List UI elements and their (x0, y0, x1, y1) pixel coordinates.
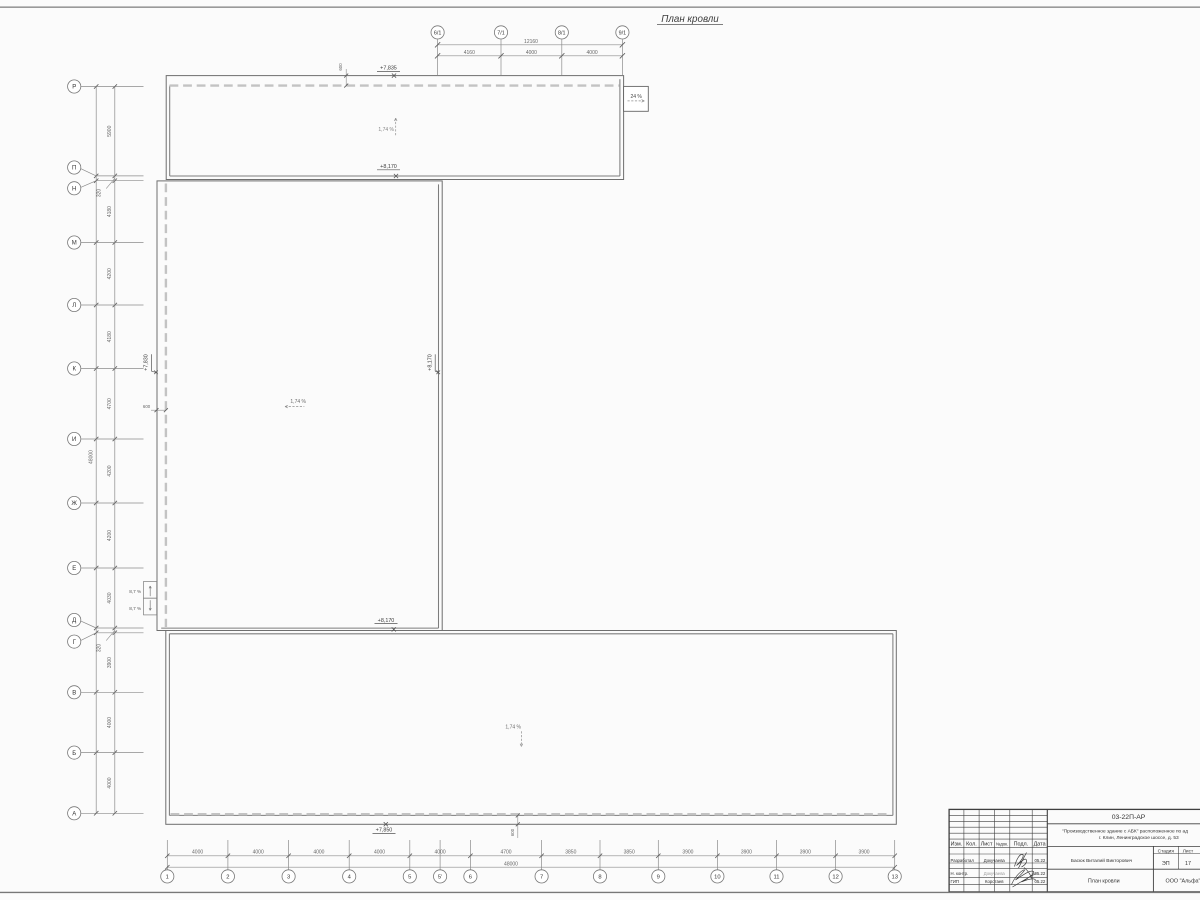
svg-text:3850: 3850 (624, 850, 635, 856)
svg-text:№док.: №док. (996, 841, 1008, 846)
svg-text:1,74 %: 1,74 % (290, 399, 306, 405)
svg-text:Е: Е (72, 566, 76, 572)
svg-text:600: 600 (338, 63, 343, 71)
svg-text:2: 2 (226, 874, 229, 880)
svg-text:600: 600 (510, 828, 515, 836)
svg-text:Дата: Дата (1034, 842, 1046, 848)
svg-text:Ж: Ж (71, 501, 77, 507)
svg-text:3900: 3900 (107, 657, 113, 668)
svg-text:48000: 48000 (504, 861, 518, 867)
svg-text:Д: Д (72, 618, 76, 624)
svg-text:4000: 4000 (107, 777, 113, 788)
svg-text:320: 320 (97, 644, 103, 653)
svg-text:4200: 4200 (107, 268, 113, 279)
svg-text:ООО "Альфа": ООО "Альфа" (1166, 879, 1200, 885)
svg-text:05.22: 05.22 (1035, 879, 1046, 884)
svg-text:П: П (72, 166, 76, 172)
svg-text:+7,850: +7,850 (376, 828, 393, 834)
svg-text:Басюк Виталий Викторович: Басюк Виталий Викторович (1071, 857, 1133, 864)
svg-text:Р: Р (72, 85, 76, 91)
svg-text:03-22П-АР: 03-22П-АР (1112, 814, 1146, 821)
svg-text:Докучаева: Докучаева (984, 871, 1006, 876)
svg-text:3850: 3850 (565, 850, 576, 856)
svg-text:10: 10 (714, 874, 720, 880)
svg-text:12: 12 (832, 874, 838, 880)
svg-text:ГИП: ГИП (951, 879, 960, 884)
svg-text:4000: 4000 (374, 850, 385, 856)
svg-text:1,74 %: 1,74 % (378, 127, 394, 133)
svg-text:5': 5' (438, 874, 442, 880)
svg-text:+7,835: +7,835 (380, 66, 397, 72)
svg-text:Н. контр.: Н. контр. (951, 871, 969, 876)
svg-text:План кровли: План кровли (1088, 879, 1120, 885)
svg-text:7/1: 7/1 (497, 30, 505, 36)
svg-text:4000: 4000 (587, 50, 598, 56)
svg-text:3900: 3900 (682, 850, 693, 856)
svg-text:Н: Н (72, 186, 76, 192)
svg-text:М: М (72, 241, 77, 247)
svg-text:12160: 12160 (524, 39, 538, 45)
svg-text:Б: Б (72, 751, 76, 757)
svg-text:4200: 4200 (107, 530, 113, 541)
svg-text:4000: 4000 (435, 850, 446, 856)
svg-text:Л: Л (72, 303, 76, 309)
svg-text:Изм.: Изм. (951, 842, 963, 848)
svg-text:+8,170: +8,170 (380, 164, 397, 170)
svg-text:11: 11 (773, 874, 779, 880)
svg-text:4030: 4030 (107, 592, 113, 603)
svg-text:4000: 4000 (526, 50, 537, 56)
svg-text:Разработал: Разработал (951, 858, 975, 863)
svg-text:6: 6 (469, 874, 472, 880)
svg-text:1: 1 (166, 874, 169, 880)
svg-text:7: 7 (540, 874, 543, 880)
svg-text:Лист: Лист (1183, 848, 1194, 854)
svg-text:А: А (72, 811, 76, 817)
svg-text:3900: 3900 (800, 850, 811, 856)
svg-text:24 %: 24 % (630, 94, 642, 100)
svg-text:3900: 3900 (858, 850, 869, 856)
svg-text:И: И (72, 437, 76, 443)
svg-text:600: 600 (143, 404, 151, 409)
svg-text:Докучаева: Докучаева (984, 858, 1006, 863)
svg-text:17: 17 (1185, 861, 1191, 867)
svg-text:+7,830: +7,830 (144, 354, 150, 371)
svg-text:4000: 4000 (107, 717, 113, 728)
svg-text:К: К (72, 367, 76, 373)
svg-text:"Производственное здание с АБК: "Производственное здание с АБК" располож… (1062, 828, 1188, 834)
svg-text:План кровли: План кровли (661, 14, 719, 25)
svg-text:4180: 4180 (107, 331, 113, 342)
svg-text:+8,170: +8,170 (378, 618, 395, 624)
svg-text:3: 3 (287, 874, 290, 880)
svg-text:ЭП: ЭП (1162, 861, 1170, 867)
svg-text:4180: 4180 (107, 206, 113, 217)
svg-text:+8,170: +8,170 (428, 354, 434, 371)
svg-text:320: 320 (97, 189, 103, 198)
svg-text:5: 5 (408, 874, 411, 880)
svg-text:4700: 4700 (107, 398, 113, 409)
svg-text:05.22: 05.22 (1035, 858, 1046, 863)
svg-text:6/1: 6/1 (434, 30, 442, 36)
svg-text:Лист: Лист (981, 842, 993, 848)
svg-text:Кол.: Кол. (966, 842, 977, 848)
svg-text:13: 13 (891, 874, 897, 880)
svg-text:Стадия: Стадия (1158, 848, 1175, 854)
svg-text:9: 9 (657, 874, 660, 880)
svg-text:5900: 5900 (107, 125, 113, 136)
svg-text:1,74 %: 1,74 % (505, 725, 521, 731)
svg-text:8,7 %: 8,7 % (129, 606, 141, 611)
svg-text:4200: 4200 (107, 465, 113, 476)
svg-text:г. Клин, Ленинградское шоссе,: г. Клин, Ленинградское шоссе, д. 53 (1099, 835, 1179, 841)
svg-text:8,7 %: 8,7 % (129, 589, 141, 594)
svg-text:4000: 4000 (313, 850, 324, 856)
svg-text:9/1: 9/1 (619, 30, 627, 36)
svg-text:4700: 4700 (500, 850, 511, 856)
svg-text:В: В (72, 690, 76, 696)
svg-text:8: 8 (598, 874, 601, 880)
svg-text:3900: 3900 (741, 850, 752, 856)
svg-text:48000: 48000 (88, 450, 94, 464)
svg-text:4000: 4000 (253, 850, 264, 856)
svg-text:05.22: 05.22 (1035, 871, 1046, 876)
svg-text:Подл.: Подл. (1014, 842, 1029, 848)
svg-text:4000: 4000 (192, 850, 203, 856)
svg-text:8/1: 8/1 (558, 30, 566, 36)
svg-text:Коротаев: Коротаев (985, 879, 1004, 884)
svg-text:4160: 4160 (464, 50, 475, 56)
